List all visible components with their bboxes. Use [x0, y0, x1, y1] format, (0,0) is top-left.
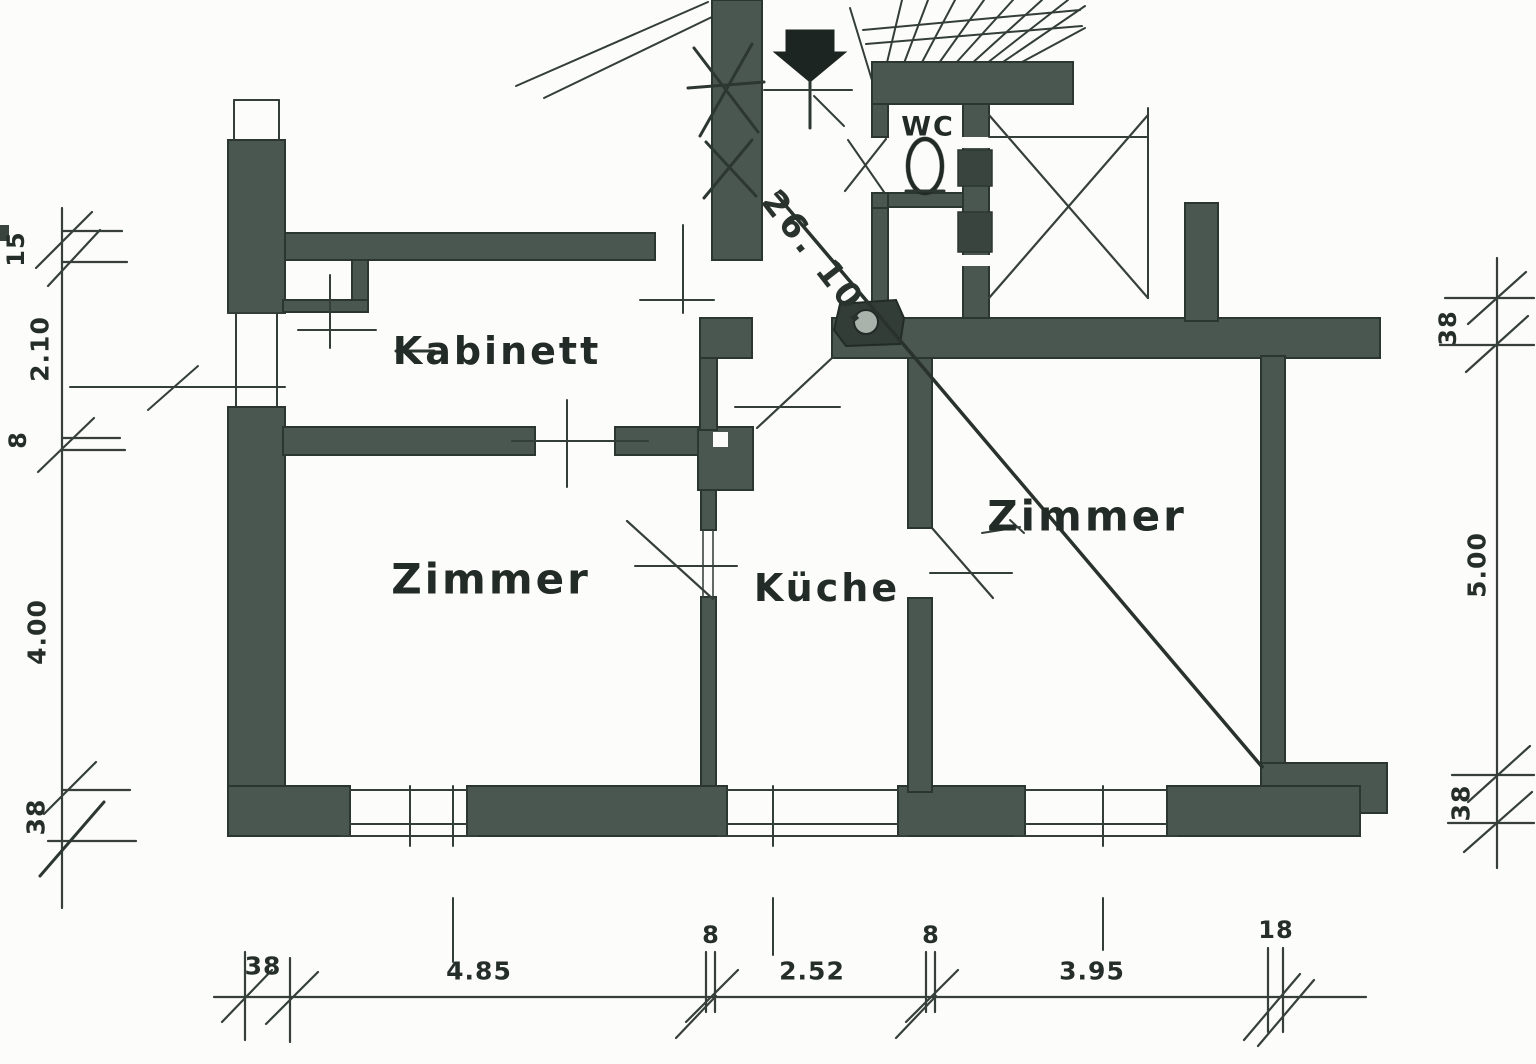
dim-label-left-400: 4.00	[23, 599, 52, 665]
wall-right-stub	[1185, 203, 1218, 321]
dim-label-left-8: 8	[4, 431, 32, 449]
wall-wc-left-a	[872, 104, 888, 137]
vestibule-cross-lines	[989, 108, 1148, 298]
wall-bottom-c	[898, 786, 1025, 836]
wall-mid-b	[832, 318, 1380, 358]
room-label-kueche: Küche	[754, 566, 900, 610]
room-label-zimmer-right: Zimmer	[987, 492, 1187, 541]
wc-fixture-upper	[958, 150, 992, 186]
wall-partition-zk-lower	[701, 597, 716, 792]
room-label-wc: WC	[901, 112, 955, 143]
dim-label-bottom-485: 4.85	[446, 957, 512, 986]
wall-bottom-b	[467, 786, 727, 836]
dim-label-bottom-18: 18	[1258, 916, 1293, 944]
wall-mid-a	[700, 318, 752, 358]
switch-symbol	[713, 432, 728, 447]
wall-partition-zk-mid	[701, 490, 716, 530]
dim-label-bottom-395: 3.95	[1059, 957, 1125, 986]
wall-left-lower	[228, 407, 285, 792]
door-swing-zimmer-right	[932, 528, 993, 598]
wall-partition-zk-upper	[700, 352, 717, 430]
wall-bottom-d	[1167, 786, 1360, 836]
dim-label-left-38: 38	[22, 799, 51, 836]
dim-label-bottom-252: 2.52	[779, 957, 845, 986]
wall-kabinett-zimmer-a	[283, 427, 535, 455]
wall-right	[1261, 356, 1285, 768]
entrance-arrow	[764, 30, 852, 128]
dim-label-bottom-38: 38	[245, 952, 282, 981]
dim-label-left-15: 15	[2, 231, 30, 266]
wall-wc-left-b	[872, 193, 888, 208]
doors	[627, 44, 1012, 792]
wall-wc-right	[963, 104, 989, 318]
door-swing-zimmer-kueche	[627, 521, 713, 599]
wall-left-upper	[228, 140, 285, 313]
room-label-kabinett: Kabinett	[393, 329, 601, 373]
floor-plan-drawing: .w{fill:#4a5750;stroke:#2c3631;stroke-wi…	[0, 0, 1536, 1064]
dim-label-right-38-bottom: 38	[1447, 785, 1476, 822]
wall-partition-kueche-zimmer-lower	[908, 598, 932, 792]
wall-partition-kueche-zimmer-upper	[908, 358, 932, 528]
dim-label-bottom-8b: 8	[922, 921, 940, 949]
toilet-icon	[906, 139, 944, 193]
room-label-zimmer-left: Zimmer	[391, 555, 591, 604]
dim-label-right-500: 5.00	[1463, 532, 1492, 598]
wall-bottom-a	[228, 786, 350, 836]
dim-label-left-210: 2.10	[26, 316, 55, 382]
dim-label-bottom-8a: 8	[702, 921, 720, 949]
wall-wc-top	[872, 62, 1073, 104]
floor-plan-canvas: .w{fill:#4a5750;stroke:#2c3631;stroke-wi…	[0, 0, 1536, 1064]
dim-label-right-38-top: 38	[1434, 310, 1462, 345]
wall-top-center	[712, 0, 762, 260]
wall-niche-sill	[283, 300, 368, 312]
wc-fixture-lower	[958, 212, 992, 252]
door-swing-kueche	[757, 358, 832, 428]
wall-kabinett-top	[283, 233, 655, 260]
